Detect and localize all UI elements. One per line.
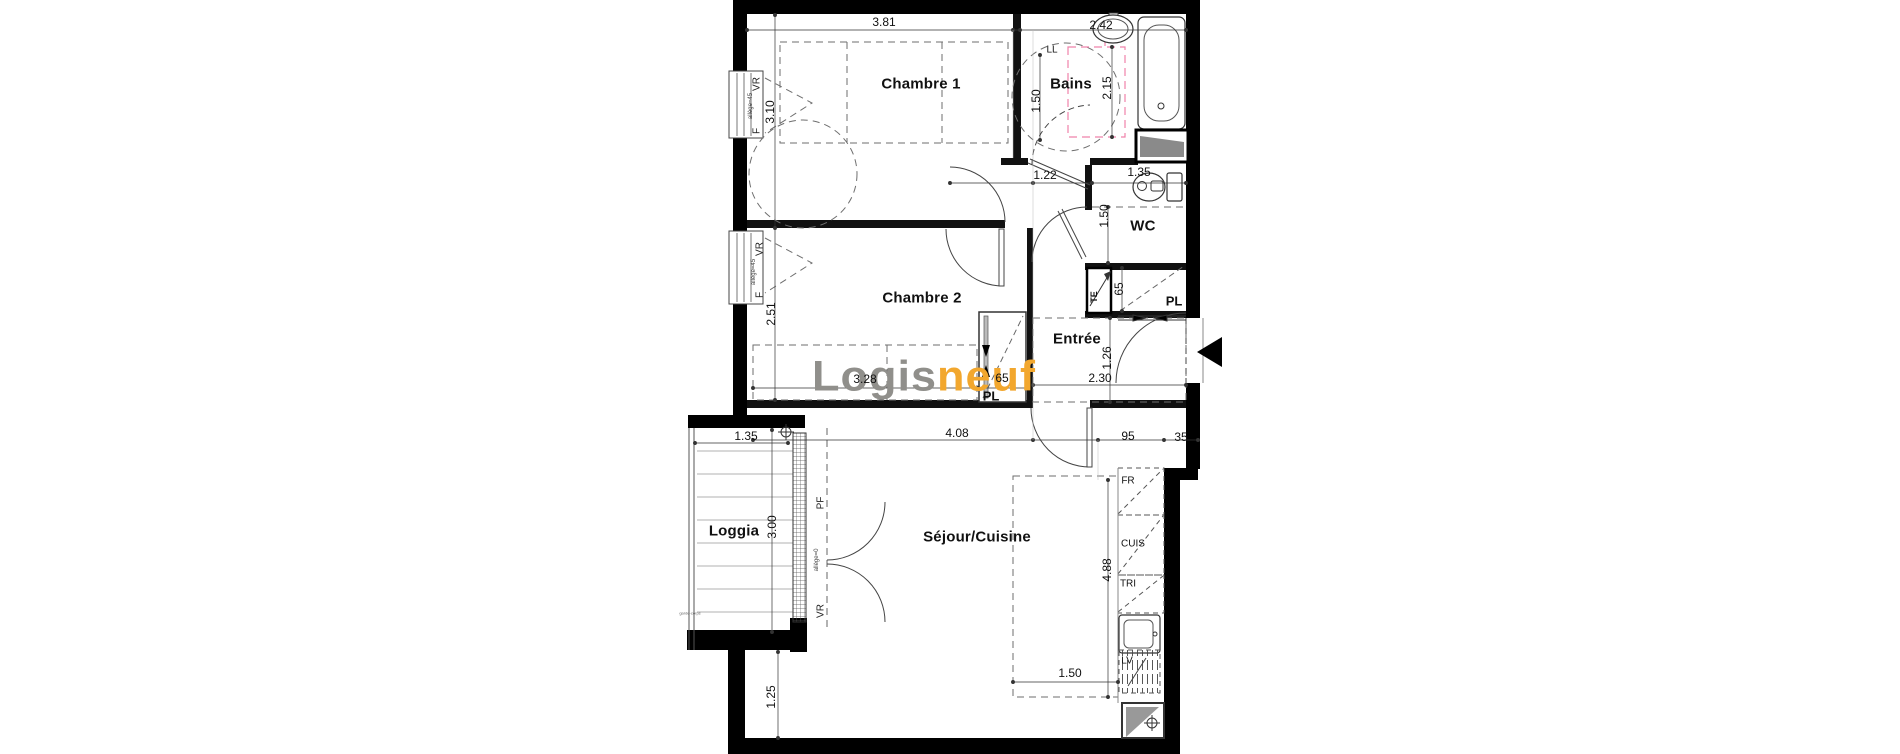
dim-150-bains: 1.50 [1029,89,1043,112]
loggia-pf-label: PF [816,497,827,510]
dim-328: 3.28 [853,372,876,386]
floorplan-page: Logisneuf Chambre 1BainsChambre 2WCEntré… [0,0,1900,754]
dim-65-te: 65 [1112,282,1126,295]
chambre2-window-allege: allège=45 [751,259,757,285]
tableau-electrique-label: TE [1089,291,1099,303]
loggia-vr-label: VR [816,604,827,618]
dim-135-loggia: 1.35 [734,429,757,443]
bains-label: Bains [1050,76,1092,93]
dim-242: 2.42 [1089,18,1112,32]
dim-35: 35 [1174,430,1187,444]
dim-215: 2.15 [1100,76,1114,99]
tri-label: TRI [1120,579,1136,590]
chambre1-window-f: F [752,128,763,134]
chambre1-window-allege: allège=45 [748,93,754,119]
dim-251: 2.51 [764,302,778,325]
dim-125: 1.25 [764,685,778,708]
loggia-label: Loggia [709,523,759,540]
dim-381: 3.81 [872,15,895,29]
placard-entree-label: PL [1166,294,1183,309]
chambre1-label: Chambre 1 [881,76,960,93]
dim-408: 4.08 [945,426,968,440]
lave-linge-label: LL [1046,45,1057,56]
chambre2-label: Chambre 2 [882,290,961,307]
chambre2-window-f: F [755,292,766,298]
cuisine-label: CUIS [1121,539,1145,550]
loggia-allege: allège=0 [814,549,820,572]
dim-150-cuisine: 1.50 [1058,666,1081,680]
dim-300: 3.00 [765,515,779,538]
frigo-label: FR [1121,476,1134,487]
sejour-cuisine-label: Séjour/Cuisine [923,529,1031,546]
chambre1-window-vr: VR [752,77,763,91]
loggia-note: garde-corps [679,611,700,616]
chambre2-window-vr: VR [755,242,766,256]
dim-126: 1.26 [1100,346,1114,369]
dim-122: 1.22 [1033,168,1056,182]
wc-label: WC [1130,218,1155,235]
dim-150-wc: 1.50 [1097,204,1111,227]
entree-label: Entrée [1053,331,1101,348]
dim-135-wc: 1.35 [1127,165,1150,179]
dim-95: 95 [1121,429,1134,443]
dim-310: 3.10 [763,100,777,123]
lave-vaisselle-label: LV [1121,656,1133,667]
dim-65-pl: 65 [995,371,1008,385]
dim-230: 2.30 [1088,371,1111,385]
plan-labels-layer: Chambre 1BainsChambre 2WCEntréeSéjour/Cu… [0,0,1900,754]
placard-chambre2-label: PL [983,389,1000,404]
dim-488: 4.88 [1100,558,1114,581]
